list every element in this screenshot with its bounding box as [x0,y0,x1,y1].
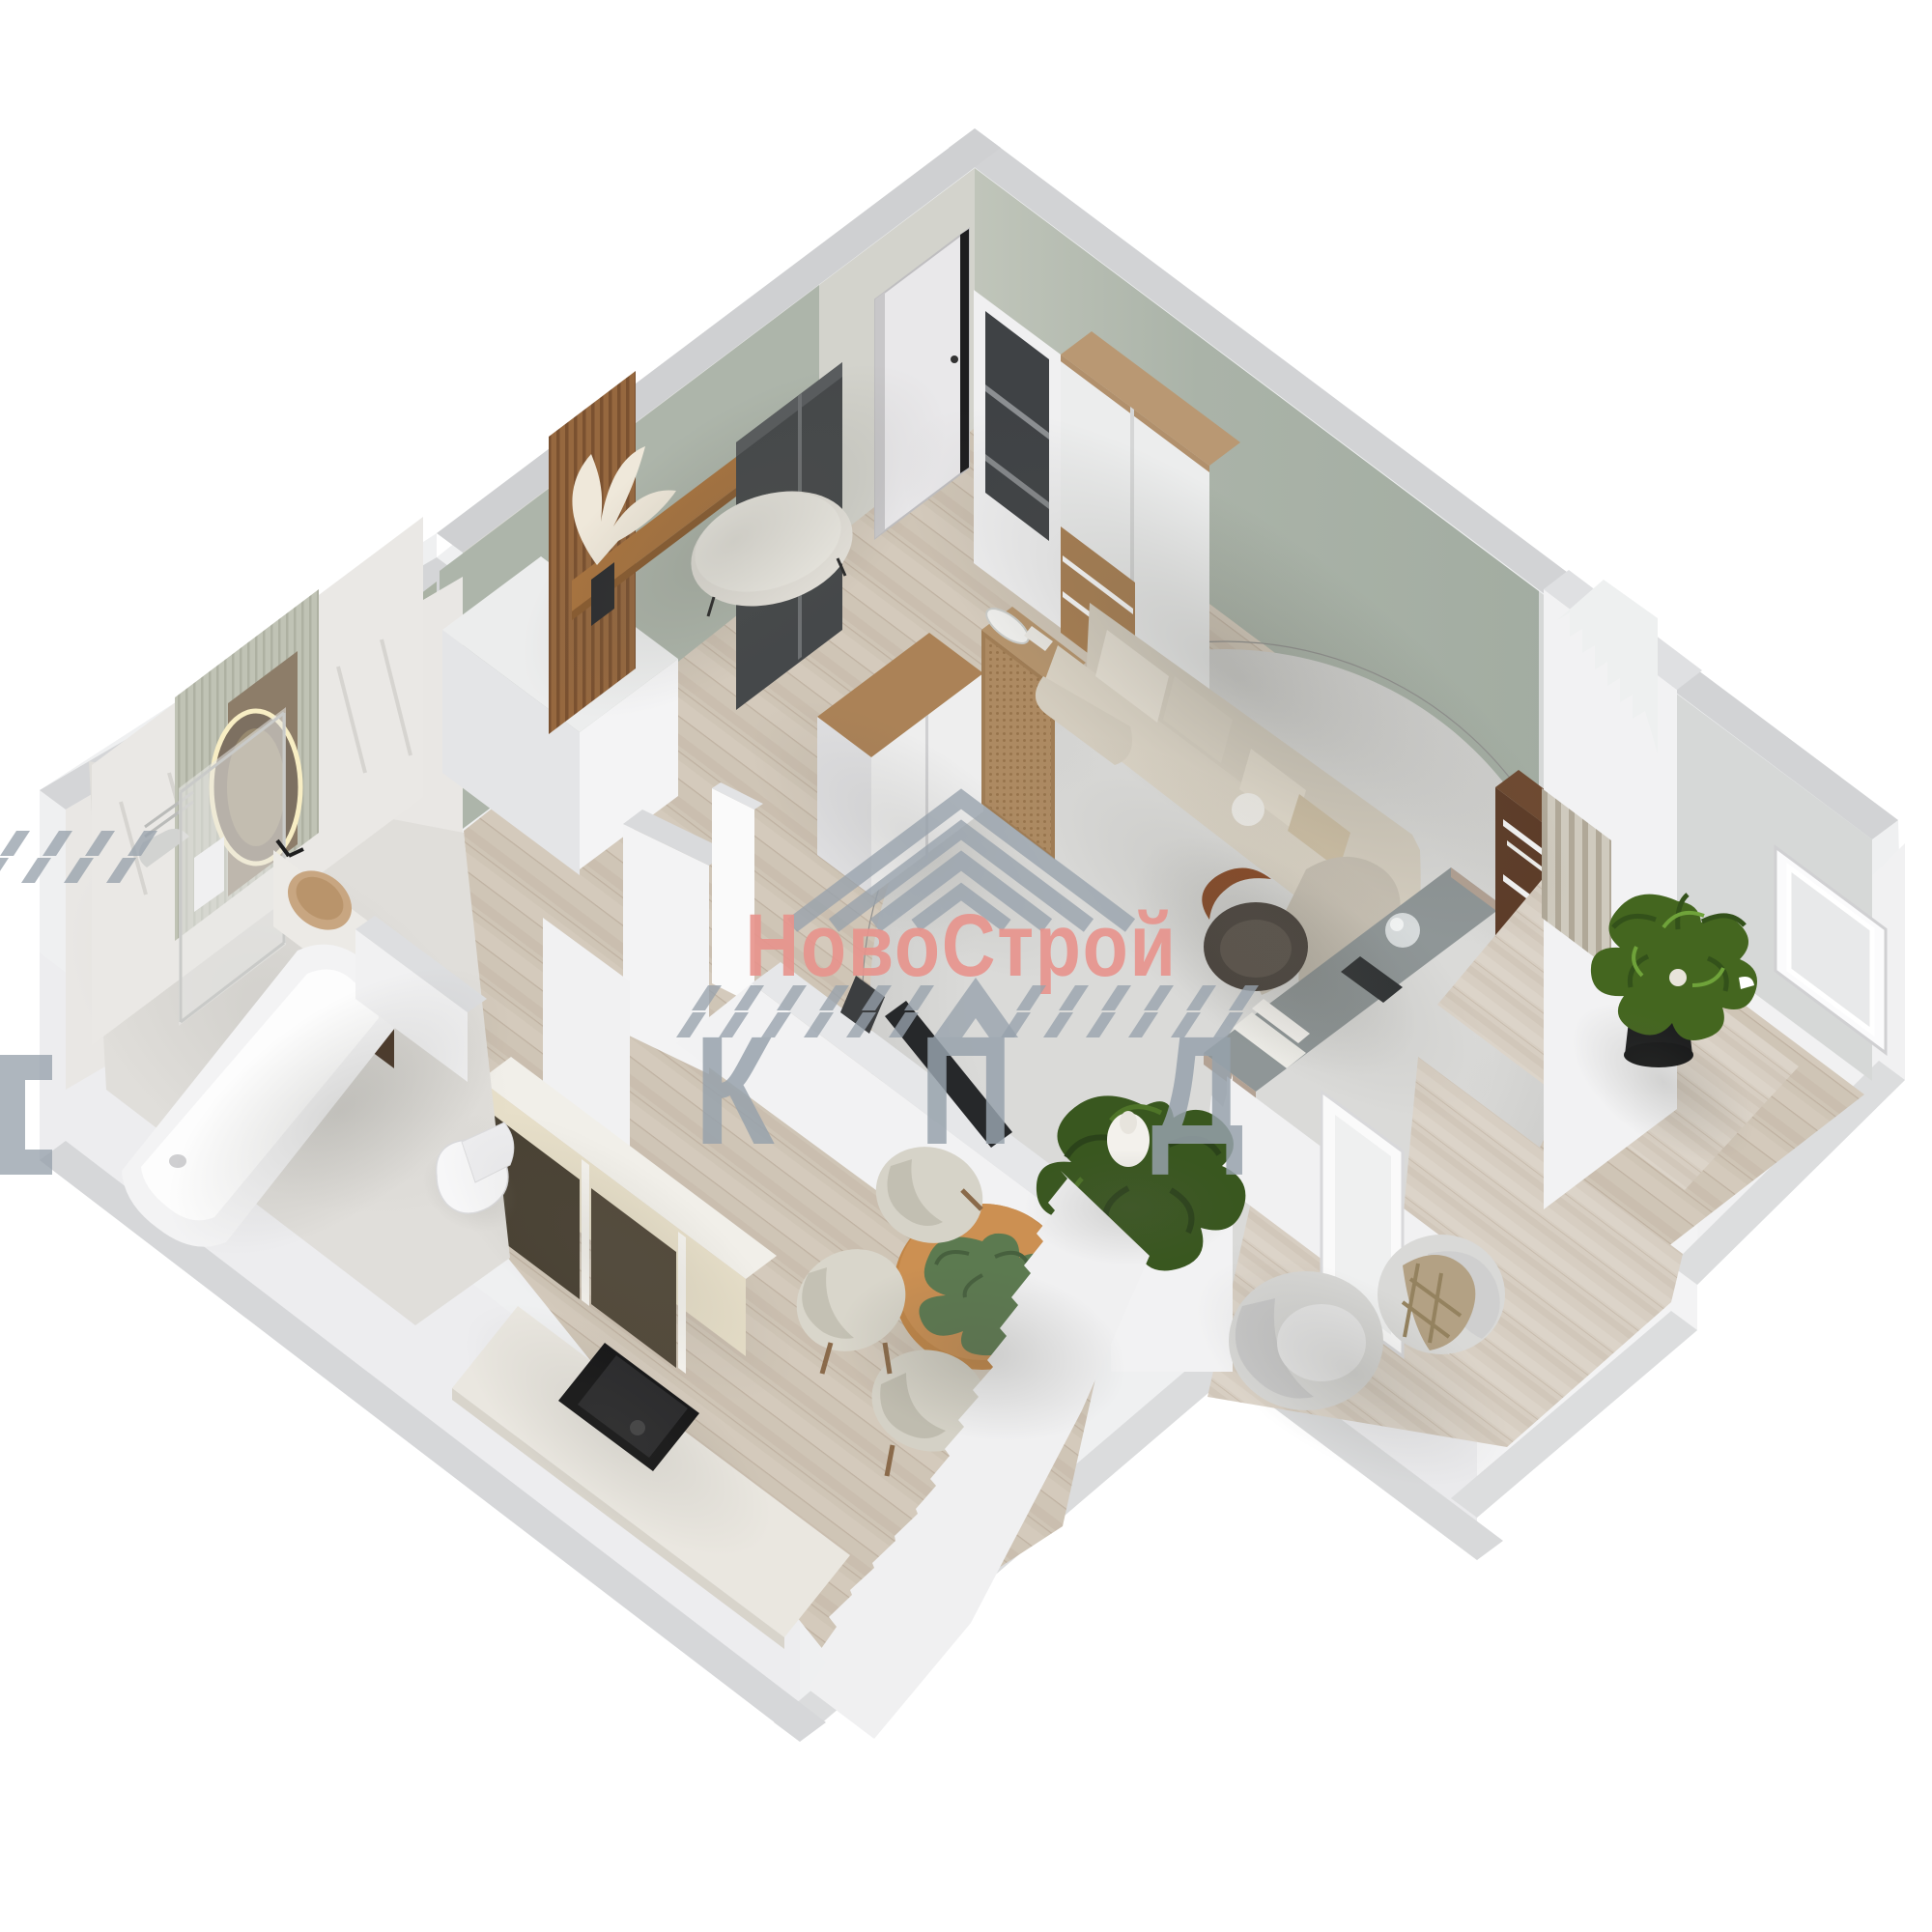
svg-text:П: П [919,1006,1013,1178]
svg-text:НовоСтрой: НовоСтрой [745,896,1177,996]
svg-text:К: К [694,1006,774,1178]
svg-text:Д: Д [1151,1006,1245,1178]
